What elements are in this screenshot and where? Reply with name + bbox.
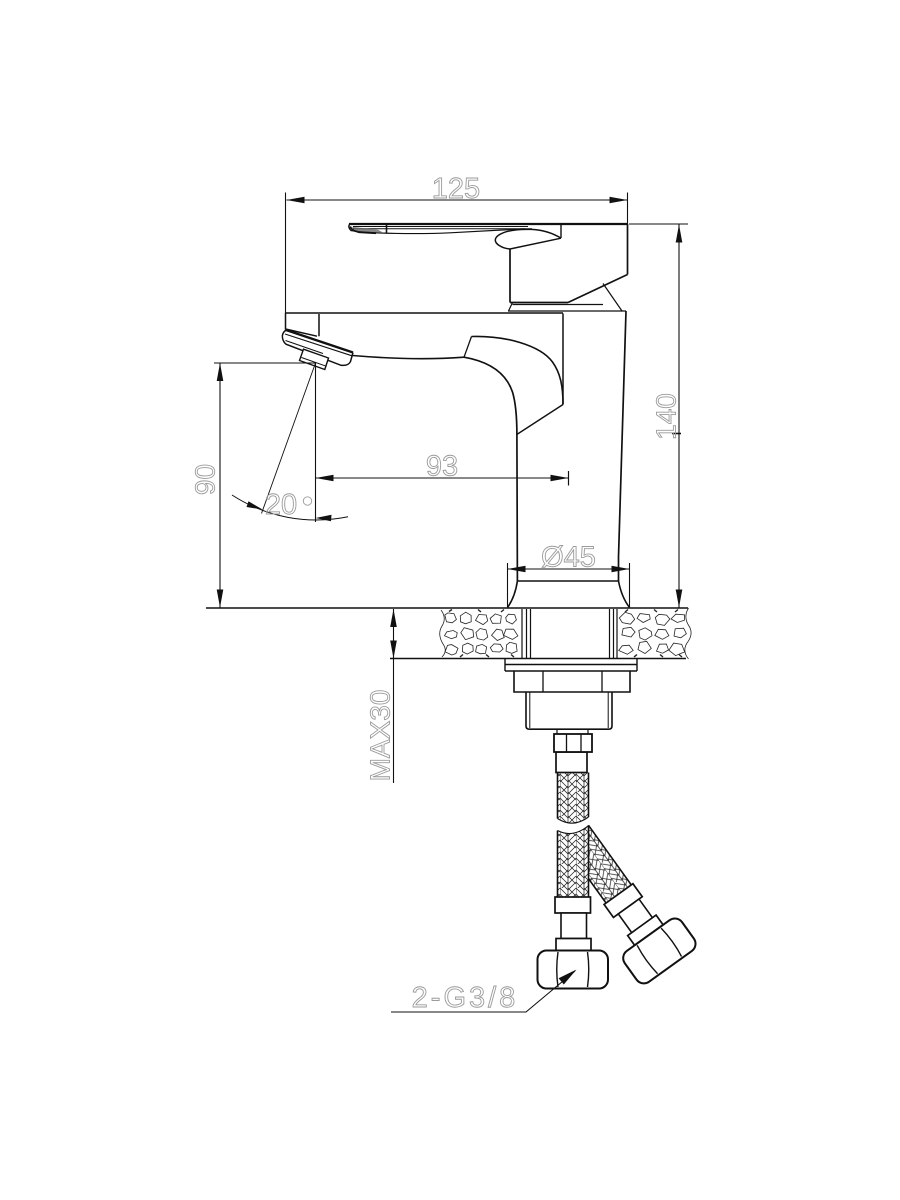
- svg-text:Ø45: Ø45: [541, 542, 596, 574]
- svg-text:125: 125: [432, 173, 480, 205]
- svg-text:MAX30: MAX30: [365, 690, 396, 782]
- svg-text:140: 140: [651, 393, 682, 440]
- svg-text:93: 93: [426, 451, 458, 483]
- svg-text:2-G3/8: 2-G3/8: [412, 982, 519, 1014]
- svg-text:90: 90: [190, 464, 221, 495]
- svg-text:20: 20: [265, 489, 297, 521]
